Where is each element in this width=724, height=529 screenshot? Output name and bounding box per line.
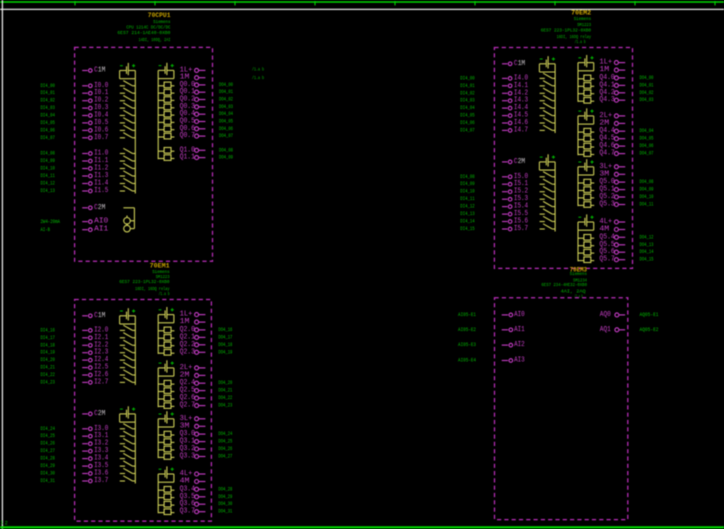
svg-text:6ES7 214-1AE40-0XB0: 6ES7 214-1AE40-0XB0 (117, 30, 170, 36)
svg-text:2W4-20mA: 2W4-20mA (41, 219, 61, 225)
svg-text:AI05-E4: AI05-E4 (458, 358, 476, 364)
svg-text:DI4_10: DI4_10 (460, 189, 474, 195)
svg-text:DO4_21: DO4_21 (218, 388, 232, 394)
svg-text:AI05-E3: AI05-E3 (458, 342, 476, 348)
svg-text:AQ1: AQ1 (600, 326, 611, 334)
svg-text:DI4_05: DI4_05 (41, 120, 55, 126)
svg-text:Q5.7: Q5.7 (599, 256, 614, 264)
svg-text:DO4_27: DO4_27 (218, 454, 232, 460)
svg-text:DI4_20: DI4_20 (41, 357, 55, 363)
svg-text:DI4_22: DI4_22 (41, 372, 55, 378)
svg-text:2M: 2M (518, 158, 525, 166)
svg-text:DI4_19: DI4_19 (41, 350, 55, 356)
svg-text:AI0: AI0 (514, 311, 525, 319)
svg-text:AI05-E1: AI05-E1 (458, 312, 476, 318)
svg-text:DI4_01: DI4_01 (41, 90, 55, 96)
svg-text:DI4_09: DI4_09 (41, 158, 55, 164)
svg-text:DO4_10: DO4_10 (640, 194, 654, 200)
svg-text:DI4_08: DI4_08 (41, 151, 55, 157)
svg-text:DO4_18: DO4_18 (218, 342, 232, 348)
svg-text:DI4_09: DI4_09 (460, 181, 474, 187)
svg-text:AQ05-E2: AQ05-E2 (640, 327, 659, 333)
svg-text:/1.a b: /1.a b (252, 75, 264, 81)
svg-text:DI4_06: DI4_06 (41, 127, 55, 133)
svg-text:AQ0: AQ0 (600, 311, 611, 319)
svg-text:DI4_03: DI4_03 (460, 98, 474, 104)
svg-text:DO4_07: DO4_07 (640, 151, 654, 157)
svg-text:I3.7: I3.7 (94, 477, 108, 485)
svg-text:Q1.1: Q1.1 (180, 154, 195, 162)
svg-text:DI4_26: DI4_26 (41, 441, 55, 447)
svg-text:6ES7 223-1PL32-0XB0: 6ES7 223-1PL32-0XB0 (541, 28, 592, 34)
svg-text:DI4_17: DI4_17 (41, 335, 55, 341)
svg-text:DO4_14: DO4_14 (640, 249, 654, 255)
svg-text:DO4_22: DO4_22 (218, 395, 232, 401)
svg-text:DO4_09: DO4_09 (640, 187, 654, 193)
svg-text:DO4_04: DO4_04 (219, 111, 233, 117)
svg-text:DO4_24: DO4_24 (218, 431, 232, 437)
svg-text:DO4_01: DO4_01 (219, 89, 233, 95)
svg-text:DO4_29: DO4_29 (218, 494, 232, 500)
svg-text:DO4_06: DO4_06 (219, 126, 233, 132)
svg-text:DI4_31: DI4_31 (41, 478, 55, 484)
svg-text:DI4_11: DI4_11 (460, 196, 474, 202)
svg-text:1M: 1M (180, 318, 190, 326)
svg-text:I0.7: I0.7 (94, 134, 108, 142)
svg-text:1: 1 (0, 520, 3, 526)
svg-text:DI4_30: DI4_30 (41, 471, 55, 477)
svg-text:1M: 1M (599, 66, 609, 74)
svg-text:AI2: AI2 (514, 341, 525, 349)
svg-text:DO4_03: DO4_03 (640, 97, 654, 103)
svg-text:Q0.7: Q0.7 (180, 132, 195, 140)
svg-text:DO4_28: DO4_28 (218, 486, 232, 492)
svg-text:1M: 1M (98, 67, 105, 75)
svg-text:DO4_20: DO4_20 (218, 380, 232, 386)
svg-text:DI4_23: DI4_23 (41, 379, 55, 385)
svg-text:4AI, 2AQ: 4AI, 2AQ (561, 288, 586, 294)
svg-text:DI4_04: DI4_04 (41, 113, 55, 119)
svg-text:DI4_18: DI4_18 (41, 342, 55, 348)
svg-text:DI4_13: DI4_13 (41, 188, 55, 194)
svg-text:DI4_04: DI4_04 (460, 105, 474, 111)
svg-text:/1.a b: /1.a b (575, 294, 583, 300)
svg-text:SM1223: SM1223 (156, 274, 170, 280)
svg-text:Q5.3: Q5.3 (599, 201, 614, 209)
svg-text:DO4_08: DO4_08 (219, 147, 233, 153)
svg-text:70CPU1: 70CPU1 (148, 12, 171, 19)
svg-text:DO4_00: DO4_00 (640, 75, 654, 81)
svg-text:DO4_02: DO4_02 (219, 97, 233, 103)
svg-text:DO4_01: DO4_01 (640, 82, 654, 88)
svg-text:DO4_11: DO4_11 (640, 202, 654, 208)
svg-text:DI4_03: DI4_03 (41, 105, 55, 111)
svg-text:DI4_16: DI4_16 (41, 327, 55, 333)
svg-text:DO4_30: DO4_30 (218, 501, 232, 507)
svg-text:DO4_23: DO4_23 (218, 403, 232, 409)
svg-text:/1.a b: /1.a b (159, 291, 170, 297)
svg-text:Q4.7: Q4.7 (599, 150, 614, 158)
svg-text:DI4_13: DI4_13 (460, 211, 474, 217)
svg-text:DI4_01: DI4_01 (460, 83, 474, 89)
svg-text:DO4_09: DO4_09 (219, 155, 233, 161)
svg-text:Q4.3: Q4.3 (599, 96, 614, 104)
svg-text:1M: 1M (98, 312, 105, 320)
svg-text:DO4_31: DO4_31 (218, 509, 232, 515)
svg-text:DO4_17: DO4_17 (218, 334, 232, 340)
svg-text:DO4_04: DO4_04 (640, 128, 654, 134)
svg-text:I2.7: I2.7 (94, 378, 108, 386)
svg-text:DO4_05: DO4_05 (640, 136, 654, 142)
svg-text:DI4_21: DI4_21 (41, 365, 55, 371)
svg-text:DO4_26: DO4_26 (218, 446, 232, 452)
svg-text:Q2.7: Q2.7 (180, 402, 195, 410)
svg-text:14DI, 10DQ, 2AI: 14DI, 10DQ, 2AI (139, 37, 171, 43)
svg-text:2M: 2M (98, 204, 105, 212)
svg-text:DI4_14: DI4_14 (460, 219, 474, 225)
svg-text:AI3: AI3 (514, 357, 525, 365)
svg-text:3M: 3M (180, 422, 190, 430)
svg-text:DI4_05: DI4_05 (460, 113, 474, 119)
svg-text:DO4_03: DO4_03 (219, 104, 233, 110)
svg-text:DI4_00: DI4_00 (41, 83, 55, 89)
svg-text:DI4_11: DI4_11 (41, 173, 55, 179)
svg-text:AI-B: AI-B (41, 227, 51, 233)
svg-text:DI4_12: DI4_12 (41, 181, 55, 187)
svg-text:DO4_08: DO4_08 (640, 179, 654, 185)
svg-text:DO4_00: DO4_00 (219, 82, 233, 88)
svg-text:/1.a b: /1.a b (252, 67, 264, 73)
svg-text:2M: 2M (98, 410, 105, 418)
svg-text:Siemens: Siemens (574, 16, 591, 22)
svg-text:2: 2 (5, 521, 8, 527)
svg-text:DI4_08: DI4_08 (460, 174, 474, 180)
svg-text:AI1: AI1 (514, 326, 525, 334)
svg-text:DI4_02: DI4_02 (460, 90, 474, 96)
svg-text:I4.7: I4.7 (514, 126, 528, 134)
svg-text:DI4_29: DI4_29 (41, 463, 55, 469)
svg-text:DI4_24: DI4_24 (41, 426, 55, 432)
svg-text:Siemens: Siemens (153, 19, 170, 25)
svg-text:DO4_07: DO4_07 (219, 133, 233, 139)
svg-text:DI4_25: DI4_25 (41, 433, 55, 439)
svg-text:AQ05-E1: AQ05-E1 (640, 312, 659, 318)
svg-text:Q3.7: Q3.7 (180, 508, 195, 516)
svg-text:DI4_02: DI4_02 (41, 98, 55, 104)
svg-text:Q2.3: Q2.3 (180, 348, 195, 356)
svg-text:6ES7 223-1PL32-0XB0: 6ES7 223-1PL32-0XB0 (119, 279, 170, 285)
svg-text:SM1223: SM1223 (577, 22, 591, 28)
svg-text:DI4_27: DI4_27 (41, 448, 55, 454)
svg-text:2M: 2M (180, 371, 190, 379)
svg-text:AI1: AI1 (94, 226, 108, 234)
svg-text:6ES7 234-4HE32-0XB0: 6ES7 234-4HE32-0XB0 (541, 282, 587, 288)
svg-text:DI4_10: DI4_10 (41, 166, 55, 172)
svg-text:DO4_06: DO4_06 (640, 143, 654, 149)
svg-text:DI4_28: DI4_28 (41, 456, 55, 462)
svg-text:Siemens: Siemens (570, 271, 587, 277)
svg-text:DO4_02: DO4_02 (640, 90, 654, 96)
svg-text:Q3.3: Q3.3 (180, 453, 195, 461)
svg-text:DI4_06: DI4_06 (460, 120, 474, 126)
svg-text:DO4_19: DO4_19 (218, 349, 232, 355)
svg-text:DO4_05: DO4_05 (219, 119, 233, 125)
svg-text:DO4_16: DO4_16 (218, 327, 232, 333)
svg-text:I1.5: I1.5 (94, 187, 108, 195)
svg-text:DI4_07: DI4_07 (460, 127, 474, 133)
svg-text:DO4_12: DO4_12 (640, 234, 654, 240)
svg-text:I5.7: I5.7 (514, 225, 528, 233)
svg-text:DO4_15: DO4_15 (640, 257, 654, 263)
svg-text:3M: 3M (599, 170, 609, 178)
svg-text:AI0: AI0 (94, 218, 108, 226)
svg-text:DO4_25: DO4_25 (218, 439, 232, 445)
svg-text:DI4_00: DI4_00 (460, 75, 474, 81)
svg-text:DI4_15: DI4_15 (460, 226, 474, 232)
svg-text:CPU 1214C DC/DC/DC: CPU 1214C DC/DC/DC (126, 25, 170, 31)
svg-text:1M: 1M (518, 60, 525, 68)
svg-text:DI4_12: DI4_12 (460, 204, 474, 210)
svg-text:/1.a b: /1.a b (575, 39, 586, 45)
svg-text:DI4_07: DI4_07 (41, 135, 55, 141)
svg-text:4M: 4M (180, 478, 190, 486)
svg-text:DO4_13: DO4_13 (640, 242, 654, 248)
svg-text:4M: 4M (599, 226, 609, 234)
svg-text:AI05-E2: AI05-E2 (458, 327, 476, 333)
svg-text:70EM1: 70EM1 (150, 262, 170, 269)
svg-text:2M: 2M (599, 119, 609, 127)
svg-text:70EM2: 70EM2 (571, 10, 591, 17)
